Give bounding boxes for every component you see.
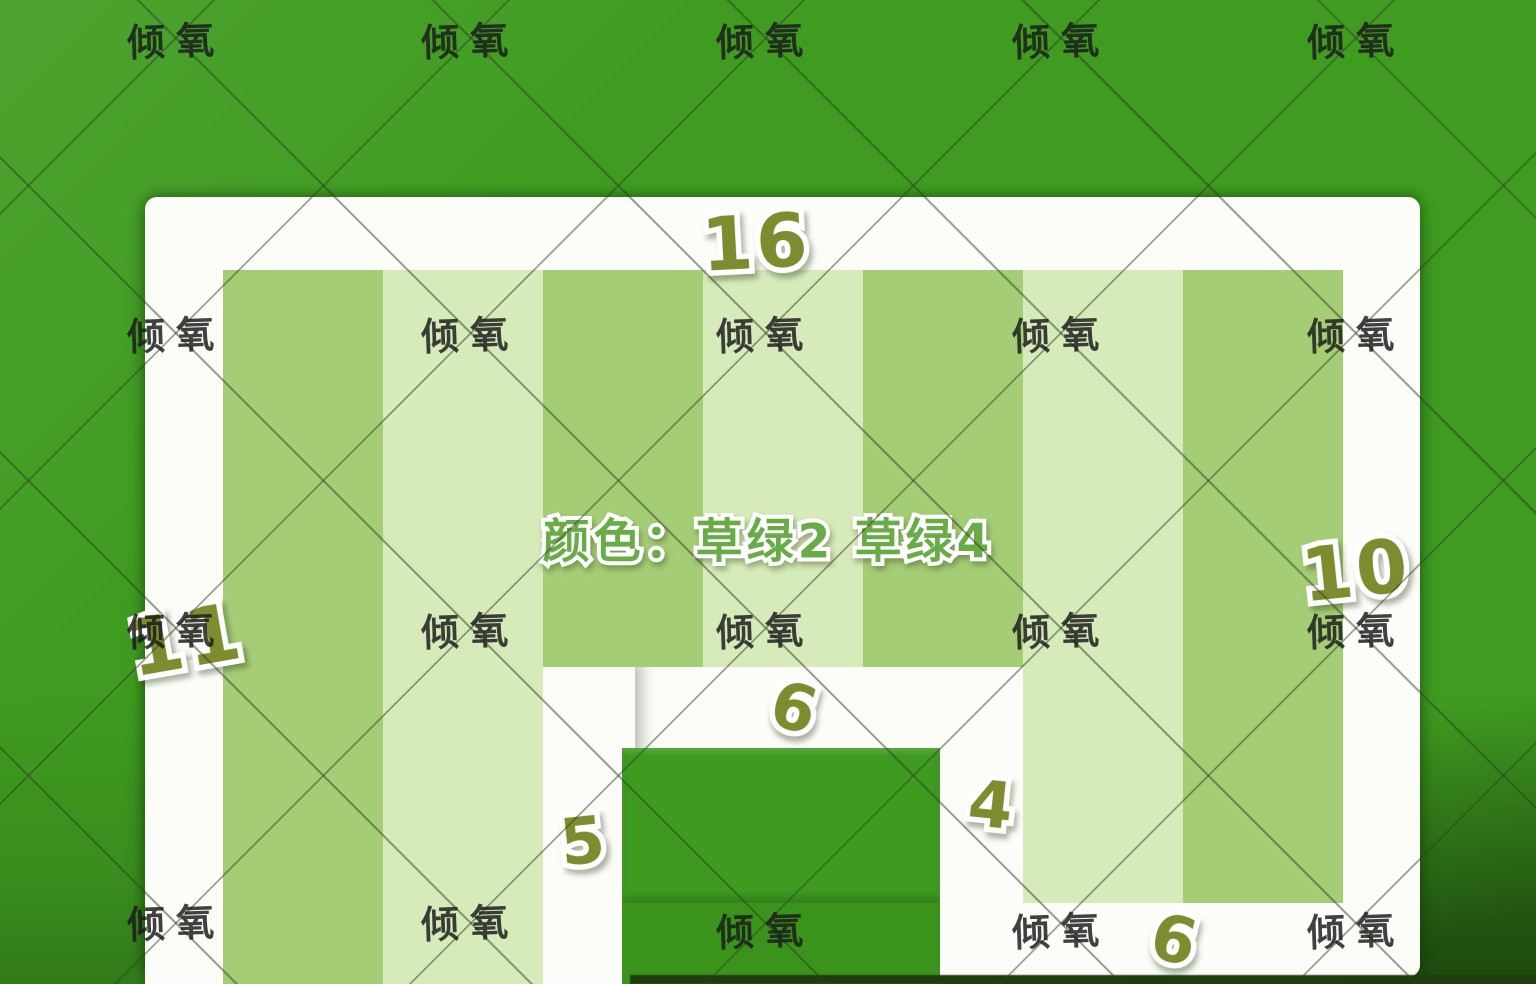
measurement-right-height: 10 (1297, 523, 1414, 620)
platform-bottom-shadow (630, 975, 1536, 984)
field-stripe-4 (703, 270, 863, 667)
field-stripe-2 (383, 270, 543, 984)
measurement-gap-left: 5 (556, 803, 611, 882)
field-stripe-5 (863, 270, 1023, 667)
grass-gap-lower (622, 903, 940, 984)
field-stripe-3 (543, 270, 703, 667)
color-note: 颜色：草绿2 草绿4 (543, 503, 994, 572)
grass-gap-upper (622, 748, 940, 903)
field-stripe-6 (1023, 270, 1183, 903)
game-floorplan-screenshot: 16 11 10 6 5 4 6 颜色：草绿2 草绿4 倾氧 倾氧 倾氧 倾氧 … (0, 0, 1536, 984)
field-stripe-1 (223, 270, 383, 984)
measurement-top-width: 16 (699, 197, 812, 289)
measurement-gap-right: 4 (964, 767, 1019, 846)
